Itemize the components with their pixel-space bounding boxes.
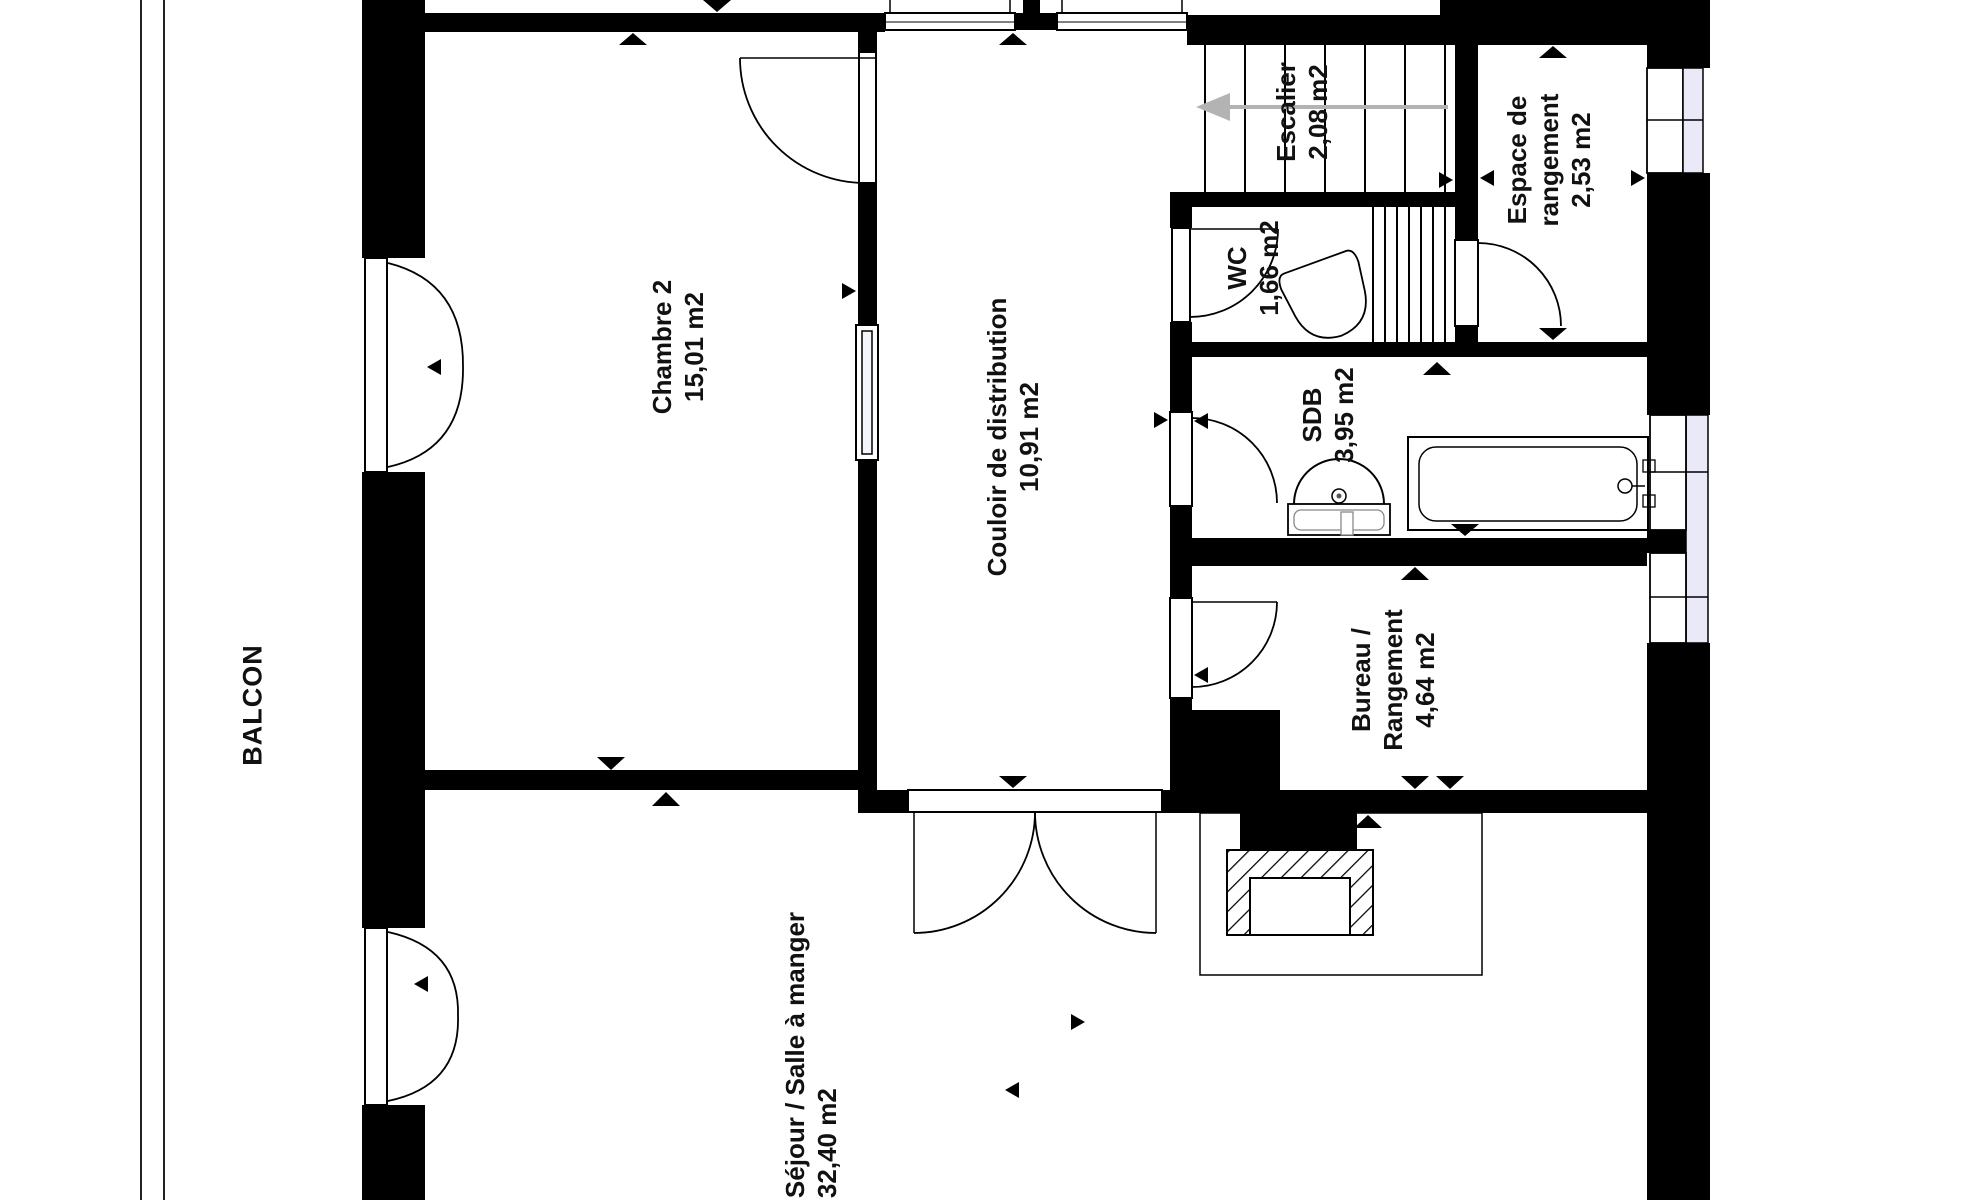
room-label-espace-rangement: Espace de rangement 2,53 m2 [1501,94,1597,227]
wall [858,790,910,813]
measure-arrow-left [1480,170,1494,186]
room-area: 2,08 m2 [1302,62,1334,162]
sink-drain [1341,512,1353,535]
room-area: 32,40 m2 [811,912,843,1198]
room-area: 10,91 m2 [1013,298,1045,577]
room-name: Espace de [1501,94,1533,227]
floor-plan-drawing [0,0,1984,1200]
measure-arrow-up [1401,567,1429,580]
wall [362,0,425,258]
measure-arrow-right [842,283,856,299]
casement-leaf-arc [388,932,458,1016]
wall [1023,0,1040,13]
room-label-sejour: Séjour / Salle à manger 32,40 m2 [779,912,843,1198]
sliding-door [856,325,878,460]
door-sdb [1170,412,1277,506]
door-swing-arc [1478,243,1561,326]
window-glass [1686,415,1708,643]
room-label-chambre2: Chambre 2 15,01 m2 [646,280,710,414]
casement-leaf-arc [388,367,463,467]
toilet-bowl [1276,248,1380,349]
fireplace-opening [1250,878,1350,935]
wall [1647,643,1710,1200]
door-swing-arc [914,812,1035,933]
wall [1188,342,1650,357]
door-leaf [859,52,876,183]
room-name: WC [1221,220,1253,315]
room-label-sdb: SDB 3,95 m2 [1296,367,1360,462]
room-label-escalier: Escalier 2,08 m2 [1270,62,1334,162]
window [1650,553,1686,643]
room-name: Séjour / Salle à manger [779,912,811,1198]
door-swing-arc [1035,812,1156,933]
door-frame [1172,228,1190,322]
room-area: 1,66 m2 [1253,220,1285,315]
measure-arrow-up [652,792,680,806]
measure-arrow-down [1401,776,1429,789]
measure-arrow-right [1631,170,1645,186]
door-frame [1170,598,1192,698]
room-label-bureau: Bureau / Rangement 4,64 m2 [1345,609,1441,751]
measure-arrow-left [1194,667,1208,683]
wall [1455,45,1478,240]
wall [858,32,877,52]
bathtub-icon [1408,437,1655,530]
wall [1192,538,1647,566]
room-name: Couloir de distribution [981,298,1013,577]
double-door-sejour [908,790,1162,933]
wall [1455,326,1478,357]
window-frame [365,258,387,472]
measure-arrow-left [414,976,428,992]
wall [858,460,877,790]
measure-arrow-left [427,359,441,375]
measure-arrow-right [1071,1014,1085,1030]
measure-arrow-down [597,757,625,770]
room-area: 2,53 m2 [1565,94,1597,227]
arrow-head [1196,93,1230,121]
wall [1647,530,1686,553]
wall [1440,0,1650,45]
wall [362,472,425,928]
bathtub-outer [1408,437,1648,530]
wall [1170,698,1192,710]
room-name: Escalier [1270,62,1302,162]
measure-arrow-left [1194,413,1208,429]
casement-leaf-arc [388,1016,458,1101]
wall [1187,15,1440,45]
door-espace-rangement [1455,240,1561,326]
wall [1170,506,1192,598]
wall [1647,173,1710,415]
balcony-railing [141,0,164,1200]
measure-arrow-down [1539,328,1567,340]
floor-plan-canvas: BALCON Chambre 2 15,01 m2 Couloir de dis… [0,0,1984,1200]
room-area: 3,95 m2 [1328,367,1360,462]
door-bureau [1170,598,1277,698]
toilet-icon [1276,248,1380,349]
room-name: Rangement [1377,609,1409,751]
door-chambre2 [740,52,876,183]
sink-icon [1288,459,1390,535]
room-name: SDB [1296,367,1328,462]
wall [858,183,877,325]
wall [362,1105,425,1200]
wall [1647,0,1710,68]
window-frame [365,928,387,1105]
measure-arrow-up [1423,362,1451,375]
door-swing-arc [1192,418,1277,503]
wall [1170,322,1192,412]
room-name: rangement [1533,94,1565,227]
wall [1170,710,1280,802]
balcony-label: BALCON [238,644,269,766]
room-area: 15,01 m2 [678,280,710,414]
wall [425,13,885,32]
room-label-couloir: Couloir de distribution 10,91 m2 [981,298,1045,577]
sliding-door-panel [862,331,872,454]
room-name: Bureau / [1345,609,1377,751]
sink-faucet-dot [1337,494,1342,499]
measure-arrow-left [1005,1082,1019,1098]
measure-arrow-down [999,776,1027,788]
measure-arrow-up [1539,46,1567,58]
wall [1188,192,1478,207]
measure-arrow-up [619,33,647,45]
door-swing-arc [740,58,865,183]
room-name: Chambre 2 [646,280,678,414]
measure-arrow-down [703,0,731,12]
measure-arrow-up [999,33,1027,45]
door-frame [1170,412,1192,506]
measure-arrow-down [1436,776,1464,789]
wall [1015,13,1057,30]
room-area: 4,64 m2 [1409,609,1441,751]
bathtub-faucet [1618,479,1632,493]
chimney-stub [1240,813,1357,850]
french-window-sejour [365,928,458,1105]
casement-leaf-arc [388,263,463,367]
door-frame [908,790,1162,812]
wall [417,770,858,790]
fireplace [1227,850,1373,935]
french-window-chambre2 [365,258,463,472]
measure-arrow-right [1154,412,1168,428]
door-frame [1455,240,1478,326]
room-label-wc: WC 1,66 m2 [1221,220,1285,315]
